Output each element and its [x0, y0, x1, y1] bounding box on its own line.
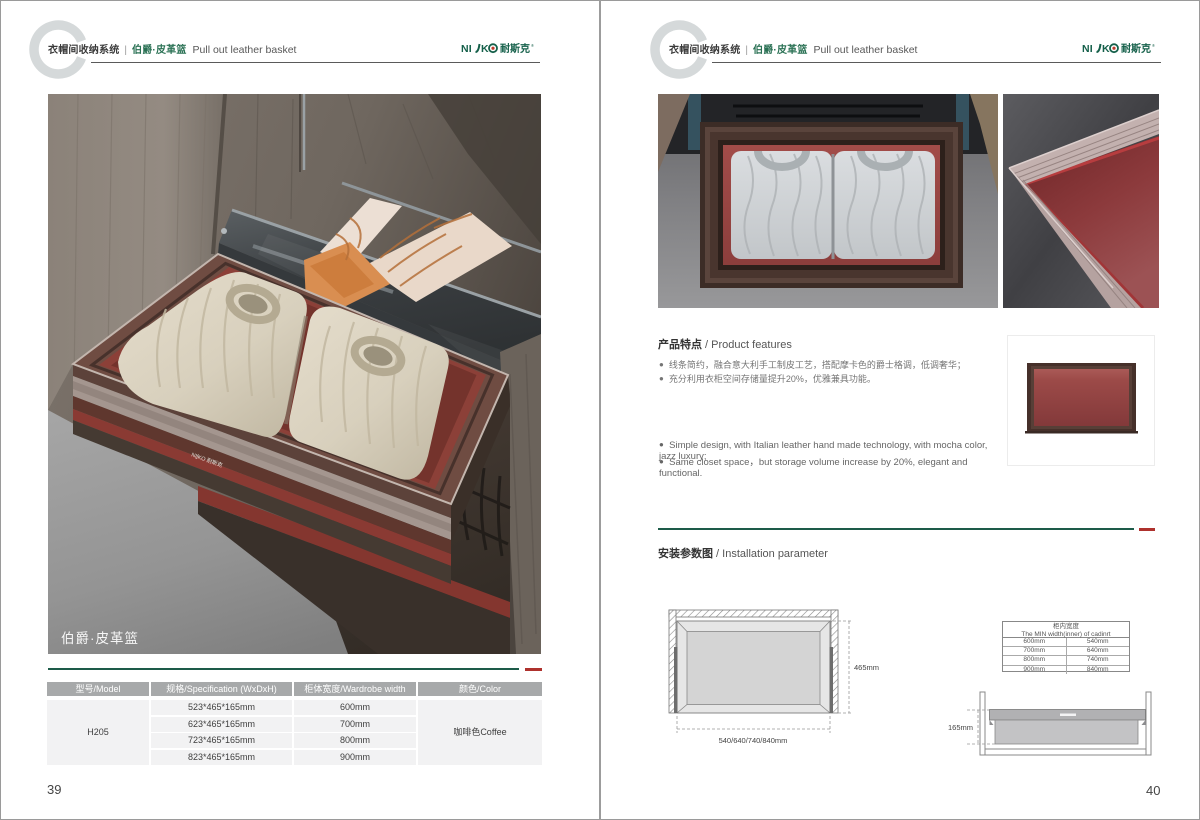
svg-text:耐斯克: 耐斯克 — [500, 42, 530, 55]
svg-text:NI: NI — [461, 43, 472, 55]
svg-text:K: K — [1102, 43, 1110, 55]
svg-text:NI: NI — [1082, 43, 1093, 55]
svg-text:®: ® — [1152, 43, 1155, 48]
svg-text:伯爵·皮革篮: 伯爵·皮革篮 — [61, 631, 139, 646]
svg-text:耐斯克: 耐斯克 — [1121, 42, 1151, 55]
svg-text:465mm: 465mm — [854, 663, 879, 672]
svg-text:165mm: 165mm — [948, 723, 973, 732]
svg-text:®: ® — [531, 43, 534, 48]
svg-text:540/640/740/840mm: 540/640/740/840mm — [719, 736, 788, 745]
svg-text:K: K — [481, 43, 489, 55]
